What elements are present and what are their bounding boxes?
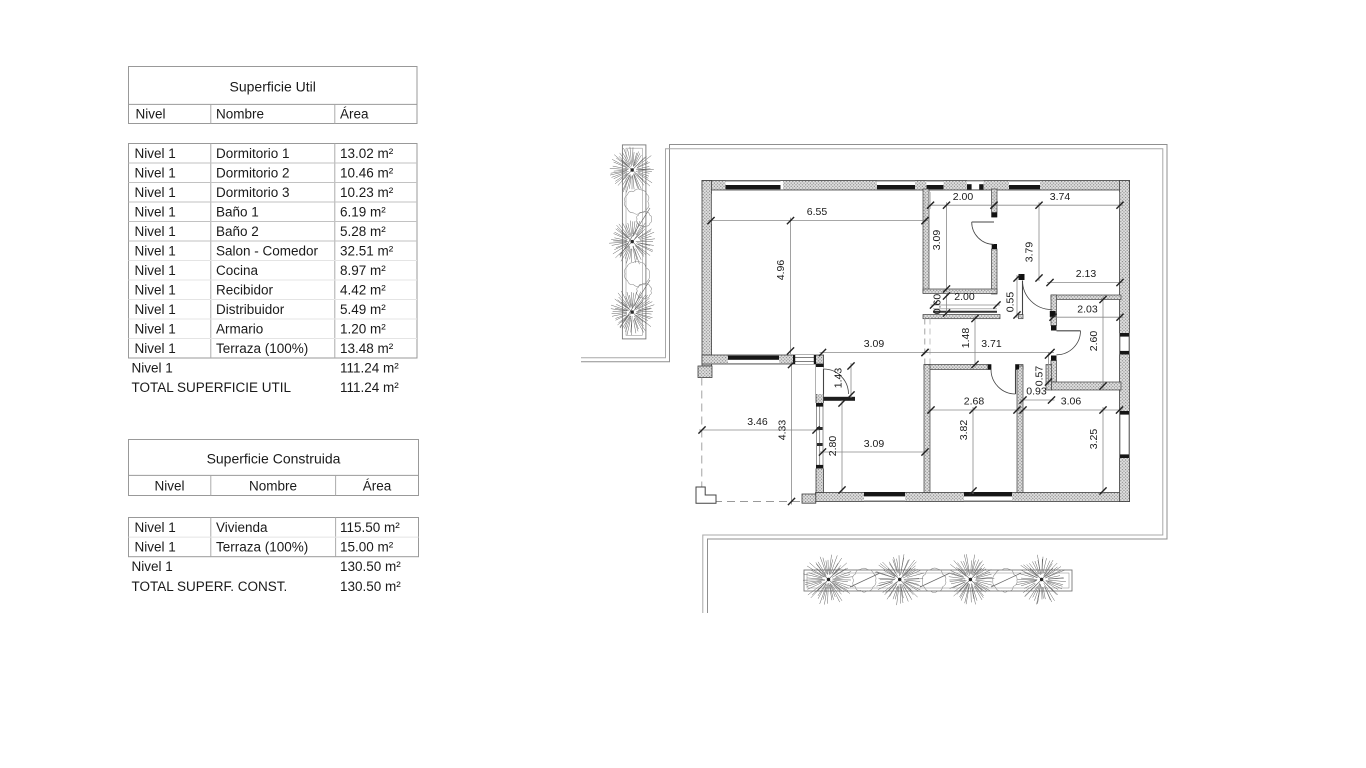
svg-text:13.48 m²: 13.48 m² <box>340 341 394 356</box>
svg-text:Nivel 1: Nivel 1 <box>135 302 176 317</box>
svg-text:Nivel 1: Nivel 1 <box>135 341 176 356</box>
svg-text:2.00: 2.00 <box>954 291 975 303</box>
svg-text:4.33: 4.33 <box>777 420 789 441</box>
svg-text:Terraza (100%): Terraza (100%) <box>216 540 308 555</box>
svg-text:Nivel 1: Nivel 1 <box>132 559 173 574</box>
svg-text:3.46: 3.46 <box>747 416 768 428</box>
svg-text:Área: Área <box>340 107 369 122</box>
svg-text:111.24 m²: 111.24 m² <box>340 361 399 376</box>
svg-text:3.06: 3.06 <box>1061 396 1082 408</box>
svg-text:3.79: 3.79 <box>1024 242 1036 263</box>
svg-text:115.50 m²: 115.50 m² <box>340 520 400 535</box>
svg-text:5.28 m²: 5.28 m² <box>340 224 386 239</box>
svg-text:Nivel 1: Nivel 1 <box>135 224 176 239</box>
svg-text:Nivel 1: Nivel 1 <box>135 322 176 337</box>
svg-text:Dormitorio 1: Dormitorio 1 <box>216 146 290 161</box>
svg-text:Recibidor: Recibidor <box>216 283 274 298</box>
svg-text:3.71: 3.71 <box>981 338 1002 350</box>
svg-text:5.49 m²: 5.49 m² <box>340 302 386 317</box>
svg-text:2.00: 2.00 <box>953 191 974 203</box>
svg-text:Nivel 1: Nivel 1 <box>135 263 176 278</box>
svg-text:Nivel 1: Nivel 1 <box>135 146 176 161</box>
svg-text:Armario: Armario <box>216 322 263 337</box>
svg-text:2.60: 2.60 <box>1088 331 1100 352</box>
svg-text:15.00 m²: 15.00 m² <box>340 540 394 555</box>
svg-text:2.68: 2.68 <box>964 396 985 408</box>
svg-text:0.57: 0.57 <box>1034 366 1046 387</box>
svg-text:10.46 m²: 10.46 m² <box>340 166 394 181</box>
svg-text:Nivel 1: Nivel 1 <box>135 244 176 259</box>
svg-text:6.19 m²: 6.19 m² <box>340 205 386 220</box>
svg-text:8.97 m²: 8.97 m² <box>340 263 386 278</box>
svg-text:2.13: 2.13 <box>1076 268 1097 280</box>
svg-text:2.03: 2.03 <box>1077 303 1098 315</box>
svg-text:Dormitorio 3: Dormitorio 3 <box>216 185 290 200</box>
svg-text:1.48: 1.48 <box>960 328 972 349</box>
svg-text:0.93: 0.93 <box>1026 386 1047 398</box>
svg-text:Área: Área <box>363 479 392 494</box>
svg-text:111.24 m²: 111.24 m² <box>340 380 399 395</box>
svg-text:1.43: 1.43 <box>833 368 845 389</box>
svg-text:4.42 m²: 4.42 m² <box>340 283 386 298</box>
svg-text:3.74: 3.74 <box>1050 191 1071 203</box>
svg-text:Baño 1: Baño 1 <box>216 205 259 220</box>
svg-text:13.02 m²: 13.02 m² <box>340 146 394 161</box>
svg-text:Cocina: Cocina <box>216 263 259 278</box>
svg-text:3.82: 3.82 <box>958 420 970 441</box>
svg-text:4.96: 4.96 <box>775 260 787 281</box>
svg-text:130.50 m²: 130.50 m² <box>340 559 401 574</box>
svg-text:Terraza (100%): Terraza (100%) <box>216 341 308 356</box>
svg-text:Nivel 1: Nivel 1 <box>132 361 173 376</box>
svg-text:TOTAL SUPERF. CONST.: TOTAL SUPERF. CONST. <box>132 579 288 594</box>
svg-text:3.09: 3.09 <box>931 230 943 251</box>
svg-text:TOTAL SUPERFICIE UTIL: TOTAL SUPERFICIE UTIL <box>132 380 292 395</box>
svg-text:0.60: 0.60 <box>932 294 944 315</box>
svg-text:Vivienda: Vivienda <box>216 520 268 535</box>
svg-text:10.23 m²: 10.23 m² <box>340 185 394 200</box>
svg-text:Nivel: Nivel <box>154 479 184 494</box>
svg-text:Nivel 1: Nivel 1 <box>135 166 176 181</box>
svg-text:Nivel 1: Nivel 1 <box>135 283 176 298</box>
svg-text:3.25: 3.25 <box>1088 429 1100 450</box>
svg-text:Nivel 1: Nivel 1 <box>135 520 176 535</box>
svg-text:Baño 2: Baño 2 <box>216 224 259 239</box>
svg-text:130.50 m²: 130.50 m² <box>340 579 401 594</box>
svg-text:0.55: 0.55 <box>1005 292 1017 313</box>
svg-text:Nombre: Nombre <box>249 479 297 494</box>
svg-text:Salon - Comedor: Salon - Comedor <box>216 244 319 259</box>
svg-text:6.55: 6.55 <box>807 206 828 218</box>
svg-text:2.80: 2.80 <box>827 436 839 457</box>
svg-text:Nivel: Nivel <box>136 107 166 122</box>
svg-text:Nivel 1: Nivel 1 <box>135 205 176 220</box>
svg-text:3.09: 3.09 <box>864 338 885 350</box>
svg-text:Dormitorio 2: Dormitorio 2 <box>216 166 290 181</box>
svg-text:Superficie Construida: Superficie Construida <box>207 451 341 467</box>
svg-text:Nivel 1: Nivel 1 <box>135 540 176 555</box>
svg-text:Nivel 1: Nivel 1 <box>135 185 176 200</box>
svg-text:32.51 m²: 32.51 m² <box>340 244 394 259</box>
svg-text:1.20 m²: 1.20 m² <box>340 322 386 337</box>
svg-text:Superficie Util: Superficie Util <box>230 79 316 95</box>
svg-text:Distribuidor: Distribuidor <box>216 302 285 317</box>
svg-text:3.09: 3.09 <box>864 438 885 450</box>
svg-text:Nombre: Nombre <box>216 107 264 122</box>
